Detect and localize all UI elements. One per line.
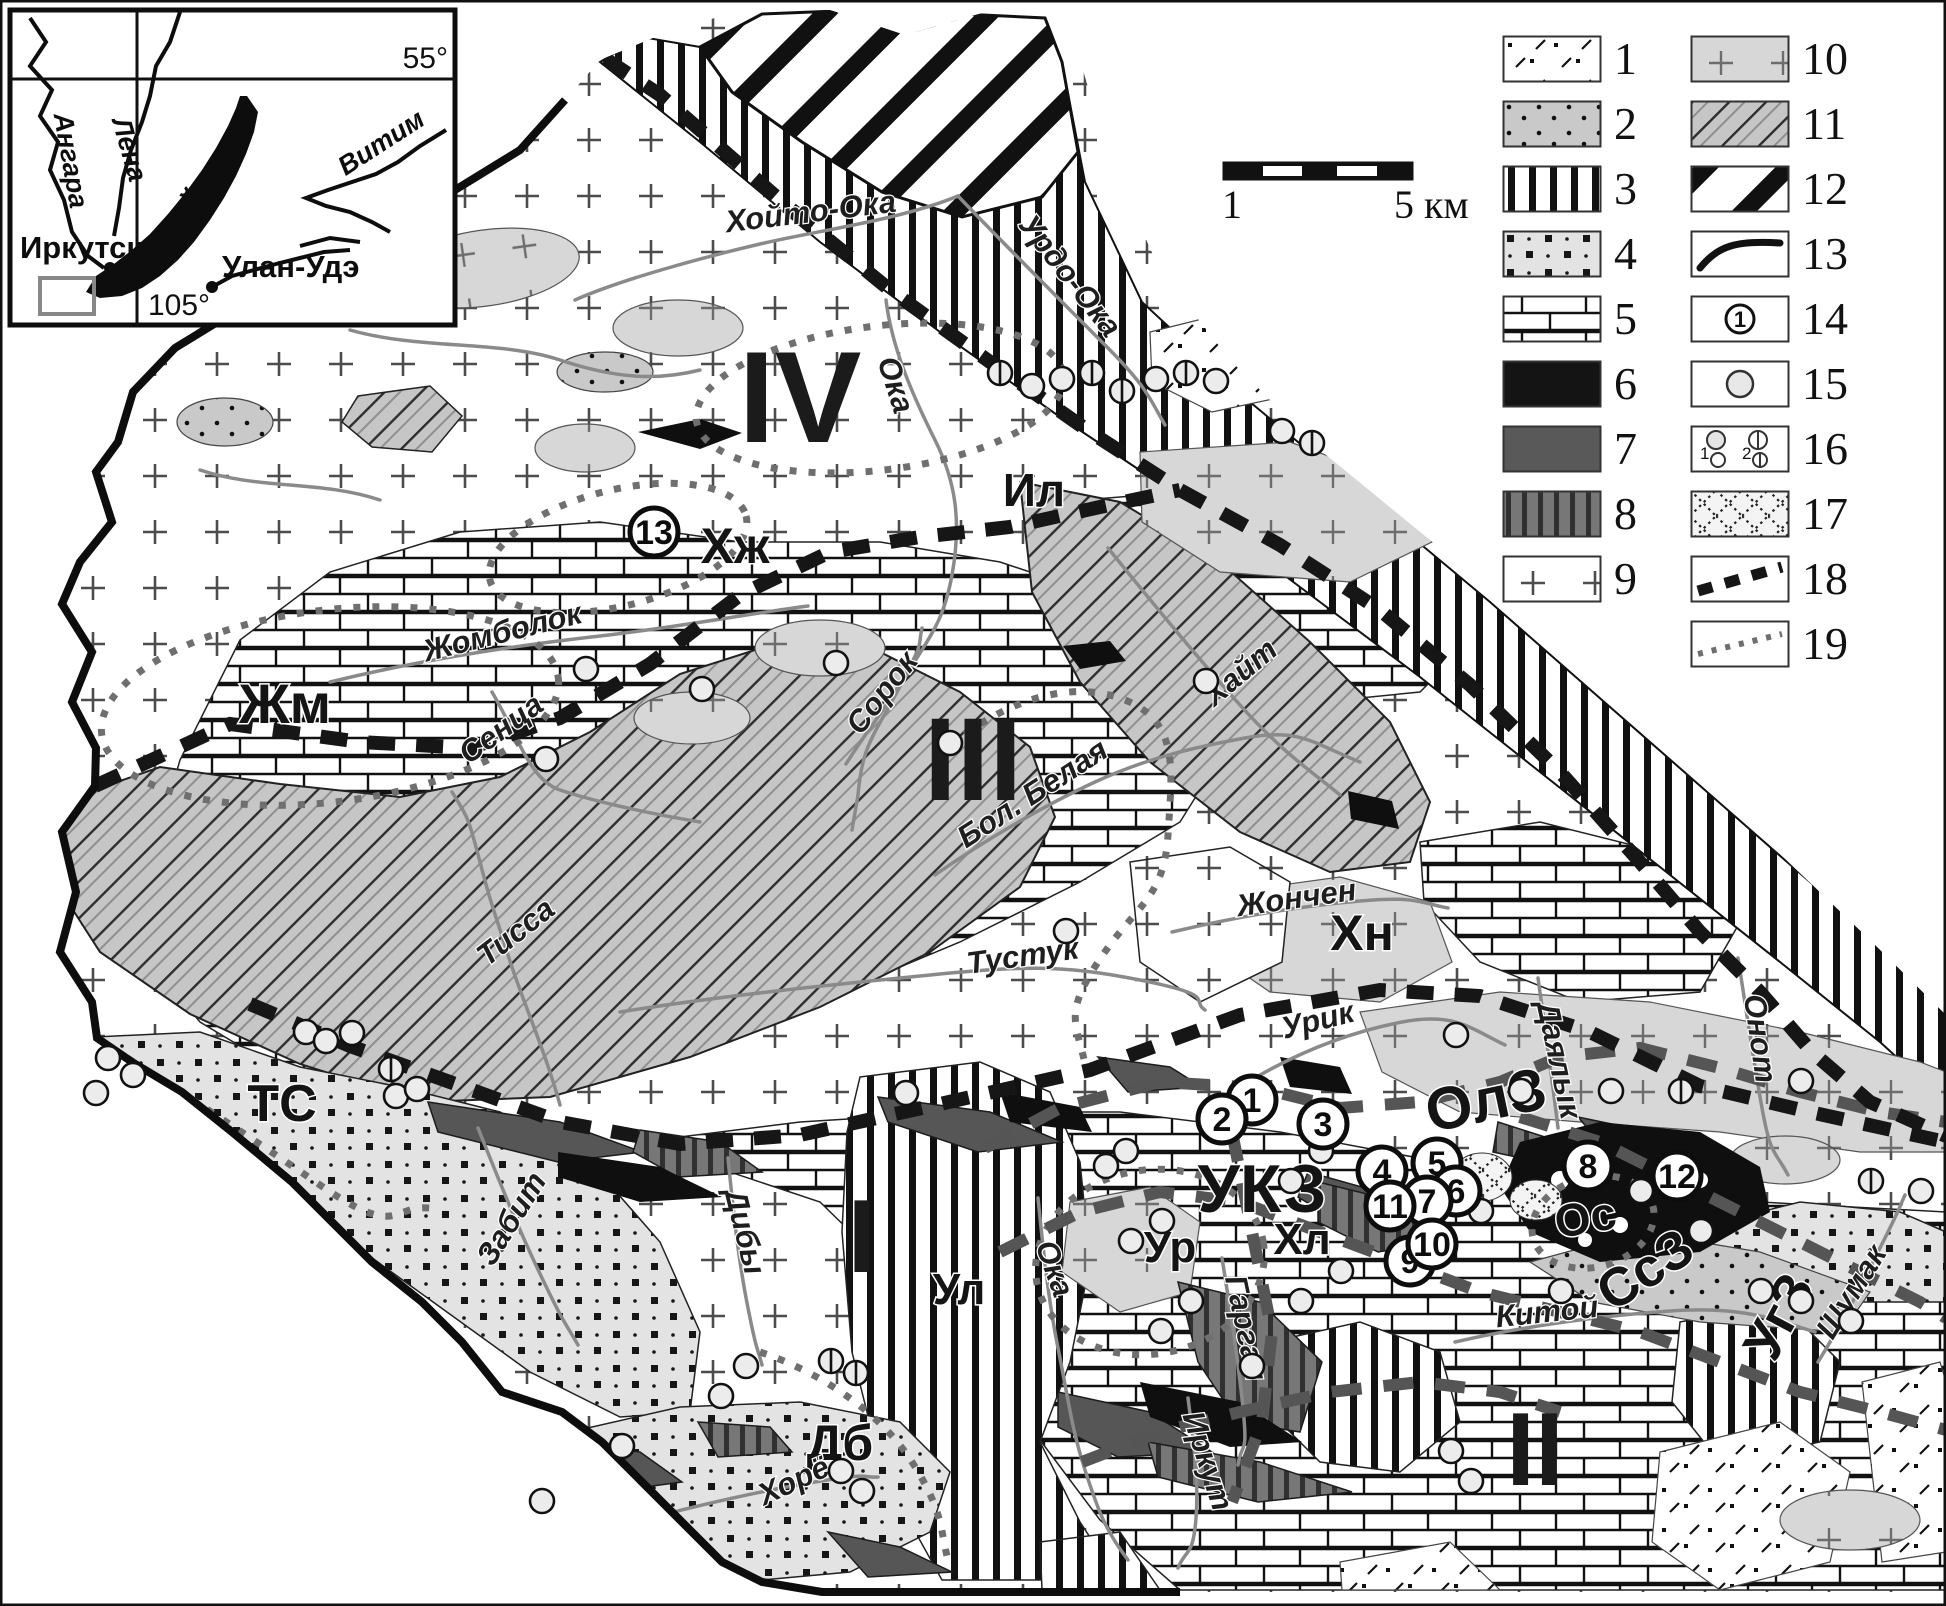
svg-text:10: 10 — [1413, 1226, 1451, 1264]
legend-swatch-18 — [1690, 555, 1790, 603]
unit-10-patch — [755, 620, 885, 676]
legend-number-6: 6 — [1602, 361, 1690, 407]
ore-circle — [1789, 1289, 1813, 1313]
ore-circle — [1194, 669, 1218, 693]
inset-city-label: Улан-Удэ — [222, 249, 359, 284]
legend-number-4: 4 — [1602, 231, 1690, 277]
scale-right-label: 5 км — [1394, 182, 1469, 227]
legend-swatch-19 — [1690, 620, 1790, 668]
numbered-point-3: 3 — [1299, 1100, 1347, 1148]
ore-circle — [1459, 1469, 1483, 1493]
ore-circle — [690, 677, 714, 701]
ore-circle — [1329, 1259, 1353, 1283]
ore-circle — [1789, 1069, 1813, 1093]
ore-circle — [340, 1021, 364, 1045]
svg-text:12: 12 — [1658, 1158, 1696, 1196]
svg-text:8: 8 — [1579, 1148, 1598, 1186]
legend-number-1: 1 — [1602, 36, 1690, 82]
ore-circle — [610, 1434, 634, 1458]
unit-10-patch — [613, 300, 743, 356]
legend-number-7: 7 — [1602, 426, 1690, 472]
numbered-point-11: 11 — [1366, 1182, 1414, 1230]
ore-circle — [1689, 1219, 1713, 1243]
ore-circle — [574, 657, 598, 681]
legend-number-14: 14 — [1790, 296, 1886, 342]
zone-label-ТС: ТС — [247, 1075, 316, 1133]
inset-city-label: Иркутск — [20, 230, 142, 265]
ore-circle — [824, 651, 848, 675]
numbered-point-13: 13 — [630, 508, 678, 556]
legend-number-16: 16 — [1790, 426, 1886, 472]
ore-circle — [1119, 1229, 1143, 1253]
unit-10-patch — [634, 692, 750, 744]
legend-swatch-12 — [1690, 165, 1790, 213]
region-numeral-IV: IV — [739, 324, 862, 470]
numbered-point-12: 12 — [1653, 1152, 1701, 1200]
legend-number-9: 9 — [1602, 556, 1690, 602]
ore-circle — [1300, 431, 1324, 455]
ore-circle — [1144, 367, 1168, 391]
ore-circle — [1509, 1079, 1533, 1103]
scale-bar-gap — [1263, 166, 1302, 176]
ore-circle — [1289, 1289, 1313, 1313]
legend-swatch-17 — [1690, 490, 1790, 538]
legend-swatch-4 — [1502, 230, 1602, 278]
legend-number-5: 5 — [1602, 296, 1690, 342]
ore-circle — [1629, 1179, 1653, 1203]
svg-text:7: 7 — [1418, 1183, 1437, 1221]
ore-circle — [1150, 1209, 1174, 1233]
ore-circle — [530, 1489, 554, 1513]
zone-label-Ул: Ул — [933, 1265, 986, 1314]
ore-circle — [1859, 1169, 1883, 1193]
zone-label-Хл: Хл — [1273, 1215, 1330, 1264]
ore-circle — [1240, 1354, 1264, 1378]
ore-circle — [121, 1063, 145, 1087]
legend-swatch-13 — [1690, 230, 1790, 278]
ore-circle — [84, 1081, 108, 1105]
scale-bar-rect — [1223, 162, 1413, 180]
ore-circle — [1080, 361, 1104, 385]
svg-text:2: 2 — [1213, 1101, 1232, 1139]
numbered-point-8: 8 — [1564, 1142, 1612, 1190]
ore-circle — [734, 1354, 758, 1378]
numbered-point-2: 2 — [1198, 1095, 1246, 1143]
legend-number-13: 13 — [1790, 231, 1886, 277]
legend-swatch-9 — [1502, 555, 1602, 603]
ore-circle — [1909, 1179, 1933, 1203]
ore-circle — [850, 1479, 874, 1503]
legend-number-8: 8 — [1602, 491, 1690, 537]
ore-circle — [1054, 919, 1078, 943]
ore-circle — [1439, 1439, 1463, 1463]
zone-label-Хж: Хж — [701, 518, 770, 574]
svg-text:1: 1 — [1700, 444, 1709, 463]
ore-circle — [1174, 361, 1198, 385]
ore-circle — [405, 1077, 429, 1101]
legend-swatch-11 — [1690, 100, 1790, 148]
legend-swatch-10 — [1690, 35, 1790, 83]
numbered-point-10: 10 — [1408, 1220, 1456, 1268]
ore-circle — [1839, 1309, 1863, 1333]
legend: 12345678910111213114151216171819 — [1502, 26, 1886, 676]
ore-circle — [1110, 379, 1134, 403]
ore-circle — [1149, 1319, 1173, 1343]
inset-lat-label: 55° — [403, 42, 448, 75]
legend-number-12: 12 — [1790, 166, 1886, 212]
legend-swatch-16: 12 — [1690, 425, 1790, 473]
ore-circle — [1114, 1139, 1138, 1163]
legend-number-2: 2 — [1602, 101, 1690, 147]
legend-swatch-15 — [1690, 360, 1790, 408]
legend-number-18: 18 — [1790, 556, 1886, 602]
legend-swatch-6 — [1502, 360, 1602, 408]
svg-text:3: 3 — [1314, 1106, 1333, 1144]
zone-label-Ос: Ос — [1550, 1186, 1619, 1248]
zone-label-Ил: Ил — [1003, 464, 1065, 516]
ore-circle — [96, 1046, 120, 1070]
ore-circle — [534, 747, 558, 771]
region-numeral-I: I — [848, 1179, 877, 1295]
inset-lon-label: 105° — [148, 289, 210, 322]
zone-label-Жм: Жм — [238, 672, 331, 735]
ore-circle — [1599, 1079, 1623, 1103]
svg-text:1: 1 — [1734, 307, 1746, 332]
ore-circle — [709, 1384, 733, 1408]
legend-number-10: 10 — [1790, 36, 1886, 82]
legend-swatch-8 — [1502, 490, 1602, 538]
ore-circle — [1050, 367, 1074, 391]
scale-bar: 15 км — [1222, 162, 1469, 227]
legend-swatch-14: 1 — [1690, 295, 1790, 343]
svg-text:2: 2 — [1742, 444, 1751, 463]
ore-circle — [1549, 1279, 1573, 1303]
ore-circle — [829, 1459, 853, 1483]
ore-circle — [1669, 1079, 1693, 1103]
legend-swatch-5 — [1502, 295, 1602, 343]
legend-number-19: 19 — [1790, 621, 1886, 667]
ore-circle — [1094, 1154, 1118, 1178]
ore-circle — [1204, 369, 1228, 393]
ore-circle — [988, 361, 1012, 385]
region-numeral-II: II — [1506, 1392, 1564, 1508]
legend-swatch-1 — [1502, 35, 1602, 83]
ore-circle — [844, 1361, 868, 1385]
unit-2-patch — [177, 398, 273, 446]
ore-circle — [379, 1057, 403, 1081]
ore-circle — [938, 731, 962, 755]
legend-number-15: 15 — [1790, 361, 1886, 407]
ore-circle — [1444, 1023, 1468, 1047]
unit-10-patch — [1780, 1490, 1920, 1550]
svg-text:13: 13 — [635, 514, 673, 552]
ore-circle — [894, 1081, 918, 1105]
legend-swatch-2 — [1502, 100, 1602, 148]
legend-number-17: 17 — [1790, 491, 1886, 537]
legend-number-3: 3 — [1602, 166, 1690, 212]
scale-bar-gap — [1337, 166, 1377, 176]
legend-swatch-3 — [1502, 165, 1602, 213]
geological-map-figure: IVIIIIII УКЗОлЗСсЗУгЗОсТСЖмХнХжИлДбУрХлУ… — [0, 0, 1946, 1606]
ore-circle — [1749, 1279, 1773, 1303]
ore-circle — [314, 1029, 338, 1053]
legend-number-11: 11 — [1790, 101, 1886, 147]
ore-circle — [1179, 1289, 1203, 1313]
ore-circle — [1270, 419, 1294, 443]
ore-circle — [819, 1349, 843, 1373]
zone-label-Хн: Хн — [1330, 905, 1394, 961]
unit-10-patch — [535, 424, 635, 472]
scale-left-label: 1 — [1222, 182, 1242, 227]
inset-location-map: 55°105°ИркутскУлан-УдэАнгараЛенаВитимоз.… — [10, 10, 455, 325]
ore-circle — [1279, 1169, 1303, 1193]
svg-text:11: 11 — [1372, 1188, 1408, 1226]
legend-swatch-7 — [1502, 425, 1602, 473]
ore-circle — [1020, 374, 1044, 398]
